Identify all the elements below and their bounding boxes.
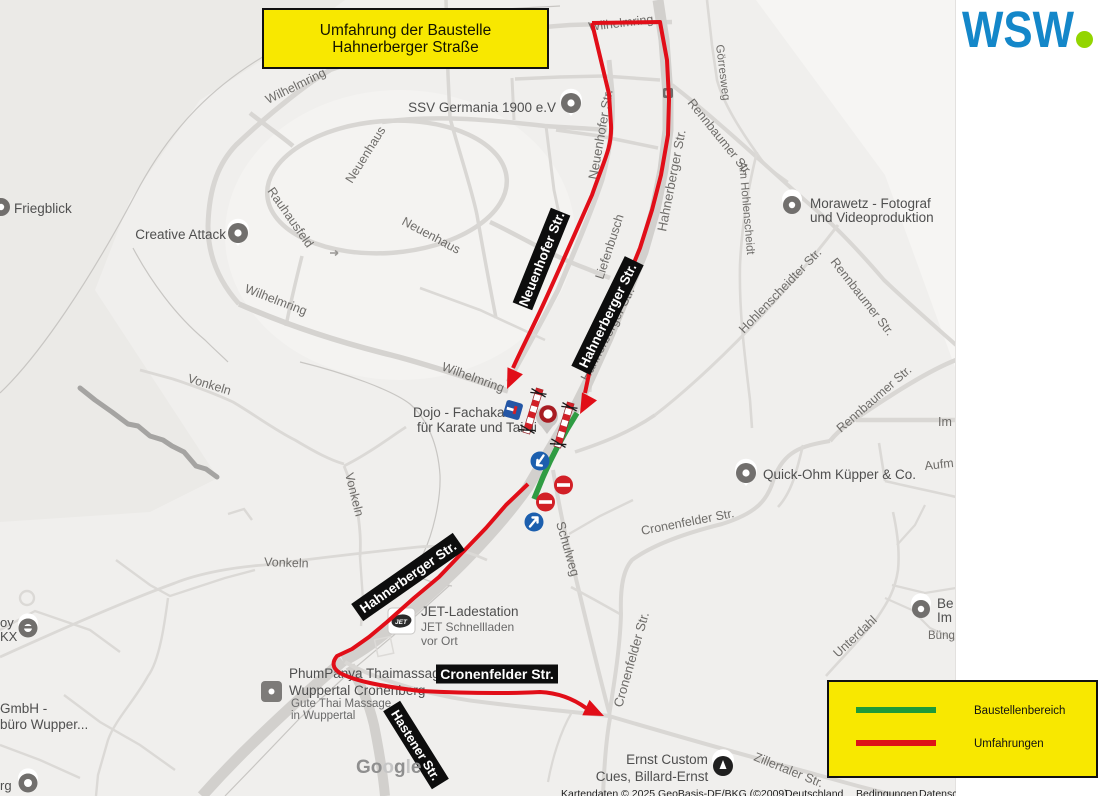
svg-text:vor Ort: vor Ort bbox=[421, 634, 458, 648]
svg-text:Deutschland: Deutschland bbox=[785, 788, 844, 796]
svg-text:und Videoproduktion: und Videoproduktion bbox=[810, 210, 934, 225]
svg-text:GmbH -: GmbH - bbox=[0, 701, 47, 716]
svg-text:Creative Attack: Creative Attack bbox=[135, 227, 226, 242]
svg-text:KX: KX bbox=[0, 629, 18, 644]
svg-text:Im: Im bbox=[937, 610, 952, 625]
svg-text:PhumPanya Thaimassag: PhumPanya Thaimassag bbox=[289, 666, 440, 681]
svg-text:in Wuppertal: in Wuppertal bbox=[291, 710, 355, 722]
svg-text:JET: JET bbox=[395, 619, 408, 626]
svg-text:Cronenfelder Str.: Cronenfelder Str. bbox=[440, 666, 554, 682]
svg-text:Be: Be bbox=[937, 596, 954, 611]
svg-text:JET Schnellladen: JET Schnellladen bbox=[421, 620, 514, 634]
svg-text:büro Wupper...: büro Wupper... bbox=[0, 717, 88, 732]
svg-text:oy: oy bbox=[0, 615, 14, 630]
svg-text:Quick-Ohm Küpper & Co.: Quick-Ohm Küpper & Co. bbox=[763, 467, 916, 482]
svg-text:Datenschutz: Datenschutz bbox=[919, 788, 956, 796]
svg-text:Ernst Custom: Ernst Custom bbox=[626, 752, 708, 767]
svg-text:Vonkeln: Vonkeln bbox=[264, 555, 309, 571]
svg-text:Morawetz - Fotograf: Morawetz - Fotograf bbox=[810, 196, 931, 211]
svg-text:für Karate und Tai Ji: für Karate und Tai Ji bbox=[417, 420, 537, 435]
svg-text:Bedingungen: Bedingungen bbox=[856, 788, 918, 796]
svg-text:SSV Germania 1900 e.V: SSV Germania 1900 e.V bbox=[408, 100, 556, 115]
svg-text:Gute Thai Massage: Gute Thai Massage bbox=[291, 698, 391, 710]
svg-text:WSW: WSW bbox=[962, 1, 1075, 58]
svg-text:JET-Ladestation: JET-Ladestation bbox=[421, 604, 519, 619]
svg-text:Google: Google bbox=[356, 757, 421, 778]
svg-text:Kartendaten © 2025 GeoBasis-DE: Kartendaten © 2025 GeoBasis-DE/BKG (©200… bbox=[561, 788, 788, 796]
svg-text:Im: Im bbox=[938, 415, 952, 429]
svg-text:Cues, Billard-Ernst: Cues, Billard-Ernst bbox=[596, 769, 709, 784]
svg-text:Friegblick: Friegblick bbox=[14, 201, 72, 216]
svg-text:rg: rg bbox=[0, 778, 12, 793]
svg-text:Büng: Büng bbox=[928, 630, 955, 642]
